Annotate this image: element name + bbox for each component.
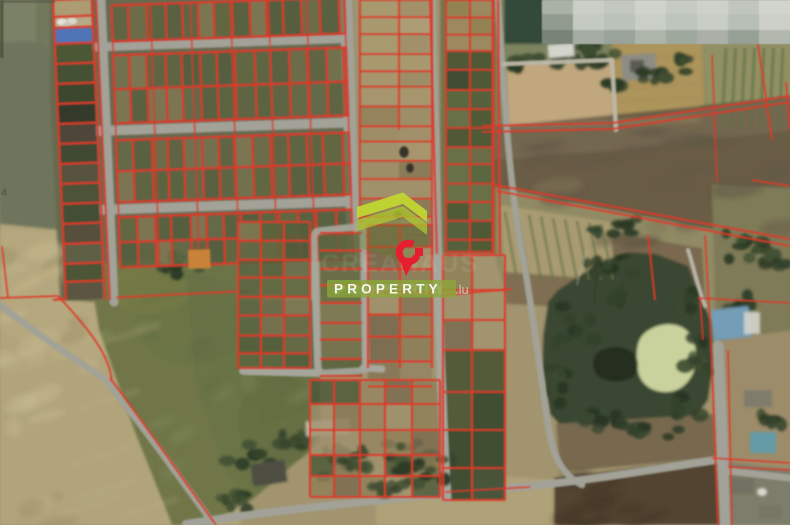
svg-text:PROPERTY: PROPERTY: [336, 281, 449, 297]
svg-text:.lu: .lu: [455, 282, 469, 297]
